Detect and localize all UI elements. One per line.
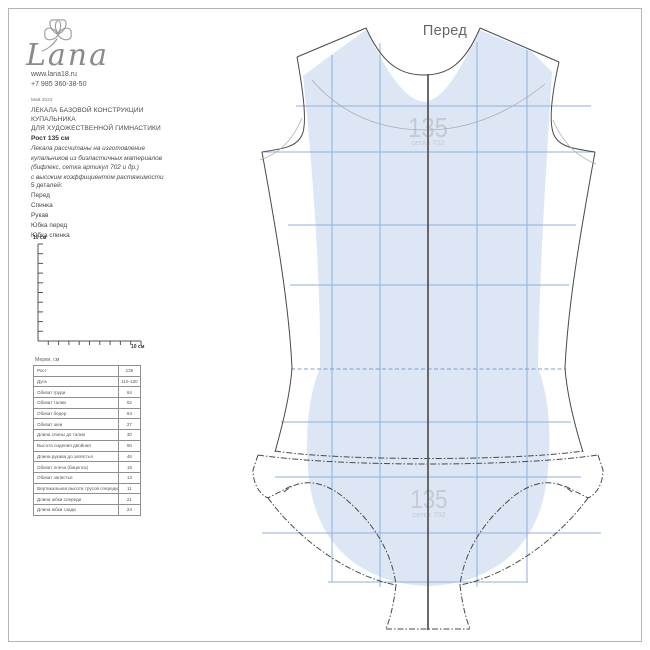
pattern-linework [0, 0, 650, 650]
construction-grid [262, 42, 601, 587]
piece-title: Перед [395, 23, 495, 39]
pattern-sheet-page: Lana www.lana18.ru +7 985 360-38-50 Май … [0, 0, 650, 650]
